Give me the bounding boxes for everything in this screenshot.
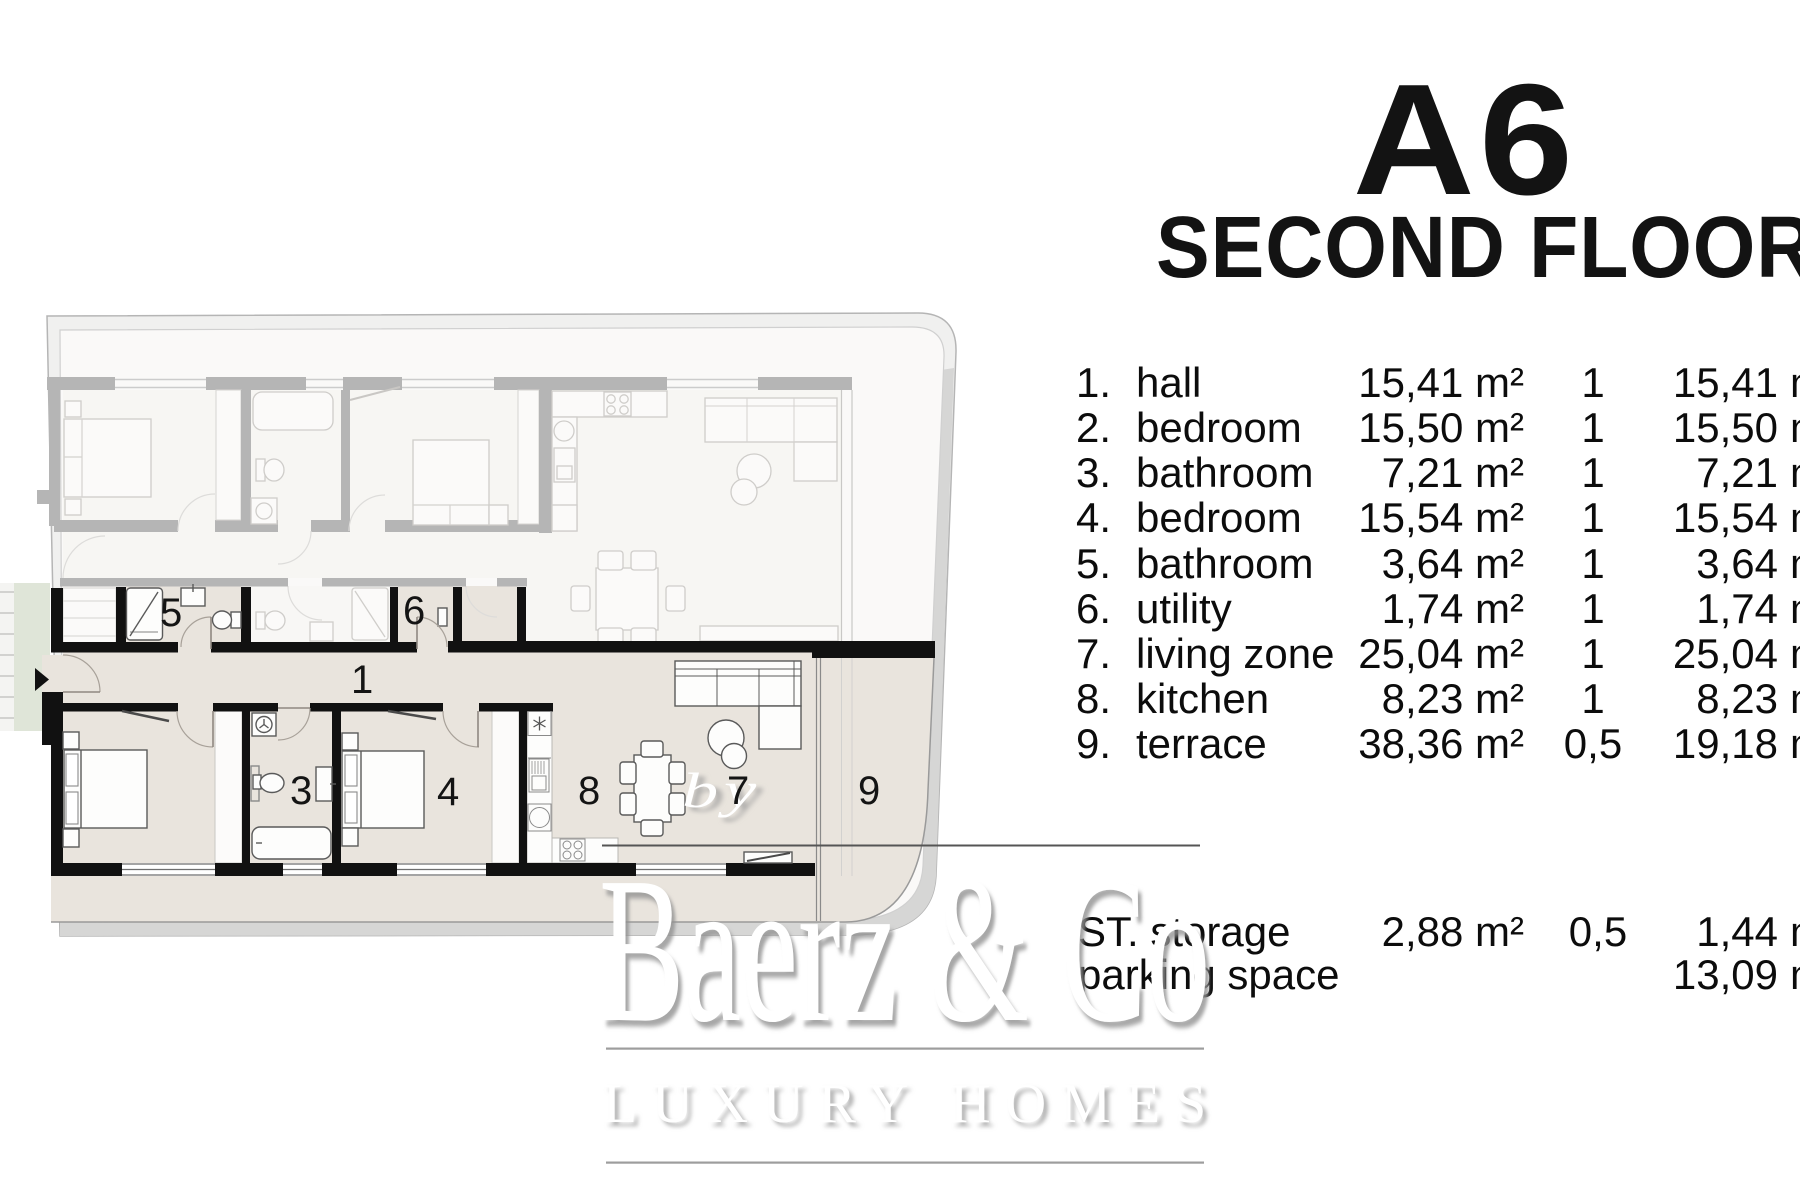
svg-text:8.: 8. — [1076, 675, 1111, 722]
svg-text:7,21 m²: 7,21 m² — [1382, 449, 1524, 496]
svg-text:8,23: 8,23 — [1696, 675, 1778, 722]
svg-text:4.: 4. — [1076, 494, 1111, 541]
svg-text:kitchen: kitchen — [1136, 675, 1269, 722]
svg-text:25,04 m²: 25,04 m² — [1358, 630, 1524, 677]
svg-text:bathroom: bathroom — [1136, 540, 1313, 587]
svg-text:8,23 m²: 8,23 m² — [1382, 675, 1524, 722]
svg-text:9: 9 — [858, 769, 880, 813]
svg-text:15,54: 15,54 — [1673, 494, 1778, 541]
svg-text:1: 1 — [1581, 585, 1604, 632]
svg-text:15,54 m²: 15,54 m² — [1358, 494, 1524, 541]
svg-text:0,5: 0,5 — [1564, 720, 1622, 767]
svg-text:m²: m² — [1790, 494, 1800, 541]
svg-text:5: 5 — [160, 591, 182, 635]
svg-text:6: 6 — [403, 589, 425, 633]
svg-text:1: 1 — [1581, 630, 1604, 677]
svg-text:m²: m² — [1790, 449, 1800, 496]
svg-text:9.: 9. — [1076, 720, 1111, 767]
svg-text:LUXURY HOMES: LUXURY HOMES — [603, 1073, 1221, 1135]
svg-text:m²: m² — [1790, 540, 1800, 587]
svg-text:7: 7 — [727, 769, 749, 813]
svg-text:m²: m² — [1790, 630, 1800, 677]
svg-text:1.: 1. — [1076, 359, 1111, 406]
svg-text:15,41 m²: 15,41 m² — [1358, 359, 1524, 406]
svg-text:1,74: 1,74 — [1696, 585, 1778, 632]
svg-text:1: 1 — [1581, 404, 1604, 451]
svg-text:3,64 m²: 3,64 m² — [1382, 540, 1524, 587]
svg-text:bathroom: bathroom — [1136, 449, 1313, 496]
svg-text:terrace: terrace — [1136, 720, 1267, 767]
svg-text:1,74 m²: 1,74 m² — [1382, 585, 1524, 632]
svg-text:13,09: 13,09 — [1673, 951, 1778, 998]
svg-text:Baerz & Co: Baerz & Co — [599, 835, 1210, 1065]
svg-text:1: 1 — [1581, 359, 1604, 406]
svg-text:2.: 2. — [1076, 404, 1111, 451]
svg-text:8: 8 — [578, 769, 600, 813]
svg-text:m²: m² — [1790, 951, 1800, 998]
svg-text:m²: m² — [1790, 908, 1800, 955]
svg-text:15,50: 15,50 — [1673, 404, 1778, 451]
svg-text:by: by — [682, 764, 762, 819]
svg-text:hall: hall — [1136, 359, 1201, 406]
svg-text:15,50 m²: 15,50 m² — [1358, 404, 1524, 451]
svg-text:4: 4 — [437, 770, 459, 814]
svg-text:living zone: living zone — [1136, 630, 1334, 677]
svg-text:5.: 5. — [1076, 540, 1111, 587]
svg-text:SECOND FLOOR: SECOND FLOOR — [1156, 198, 1800, 296]
svg-text:3,64: 3,64 — [1696, 540, 1778, 587]
svg-text:bedroom: bedroom — [1136, 404, 1302, 451]
svg-text:m²: m² — [1790, 359, 1800, 406]
svg-text:m²: m² — [1790, 585, 1800, 632]
svg-text:15,41: 15,41 — [1673, 359, 1778, 406]
svg-text:1: 1 — [1581, 449, 1604, 496]
svg-text:7,21: 7,21 — [1696, 449, 1778, 496]
svg-text:bedroom: bedroom — [1136, 494, 1302, 541]
svg-text:3: 3 — [290, 769, 312, 813]
svg-text:m²: m² — [1790, 675, 1800, 722]
svg-text:1,44: 1,44 — [1696, 908, 1778, 955]
svg-text:utility: utility — [1136, 585, 1232, 632]
svg-text:19,18: 19,18 — [1673, 720, 1778, 767]
svg-text:2,88 m²: 2,88 m² — [1382, 908, 1524, 955]
svg-text:1: 1 — [1581, 675, 1604, 722]
svg-text:m²: m² — [1790, 404, 1800, 451]
svg-text:1: 1 — [1581, 540, 1604, 587]
svg-text:7.: 7. — [1076, 630, 1111, 677]
svg-text:25,04: 25,04 — [1673, 630, 1778, 677]
svg-text:3.: 3. — [1076, 449, 1111, 496]
svg-text:38,36 m²: 38,36 m² — [1358, 720, 1524, 767]
svg-text:0,5: 0,5 — [1569, 908, 1627, 955]
svg-text:m²: m² — [1790, 720, 1800, 767]
svg-text:6.: 6. — [1076, 585, 1111, 632]
svg-text:1: 1 — [351, 658, 373, 702]
svg-text:1: 1 — [1581, 494, 1604, 541]
